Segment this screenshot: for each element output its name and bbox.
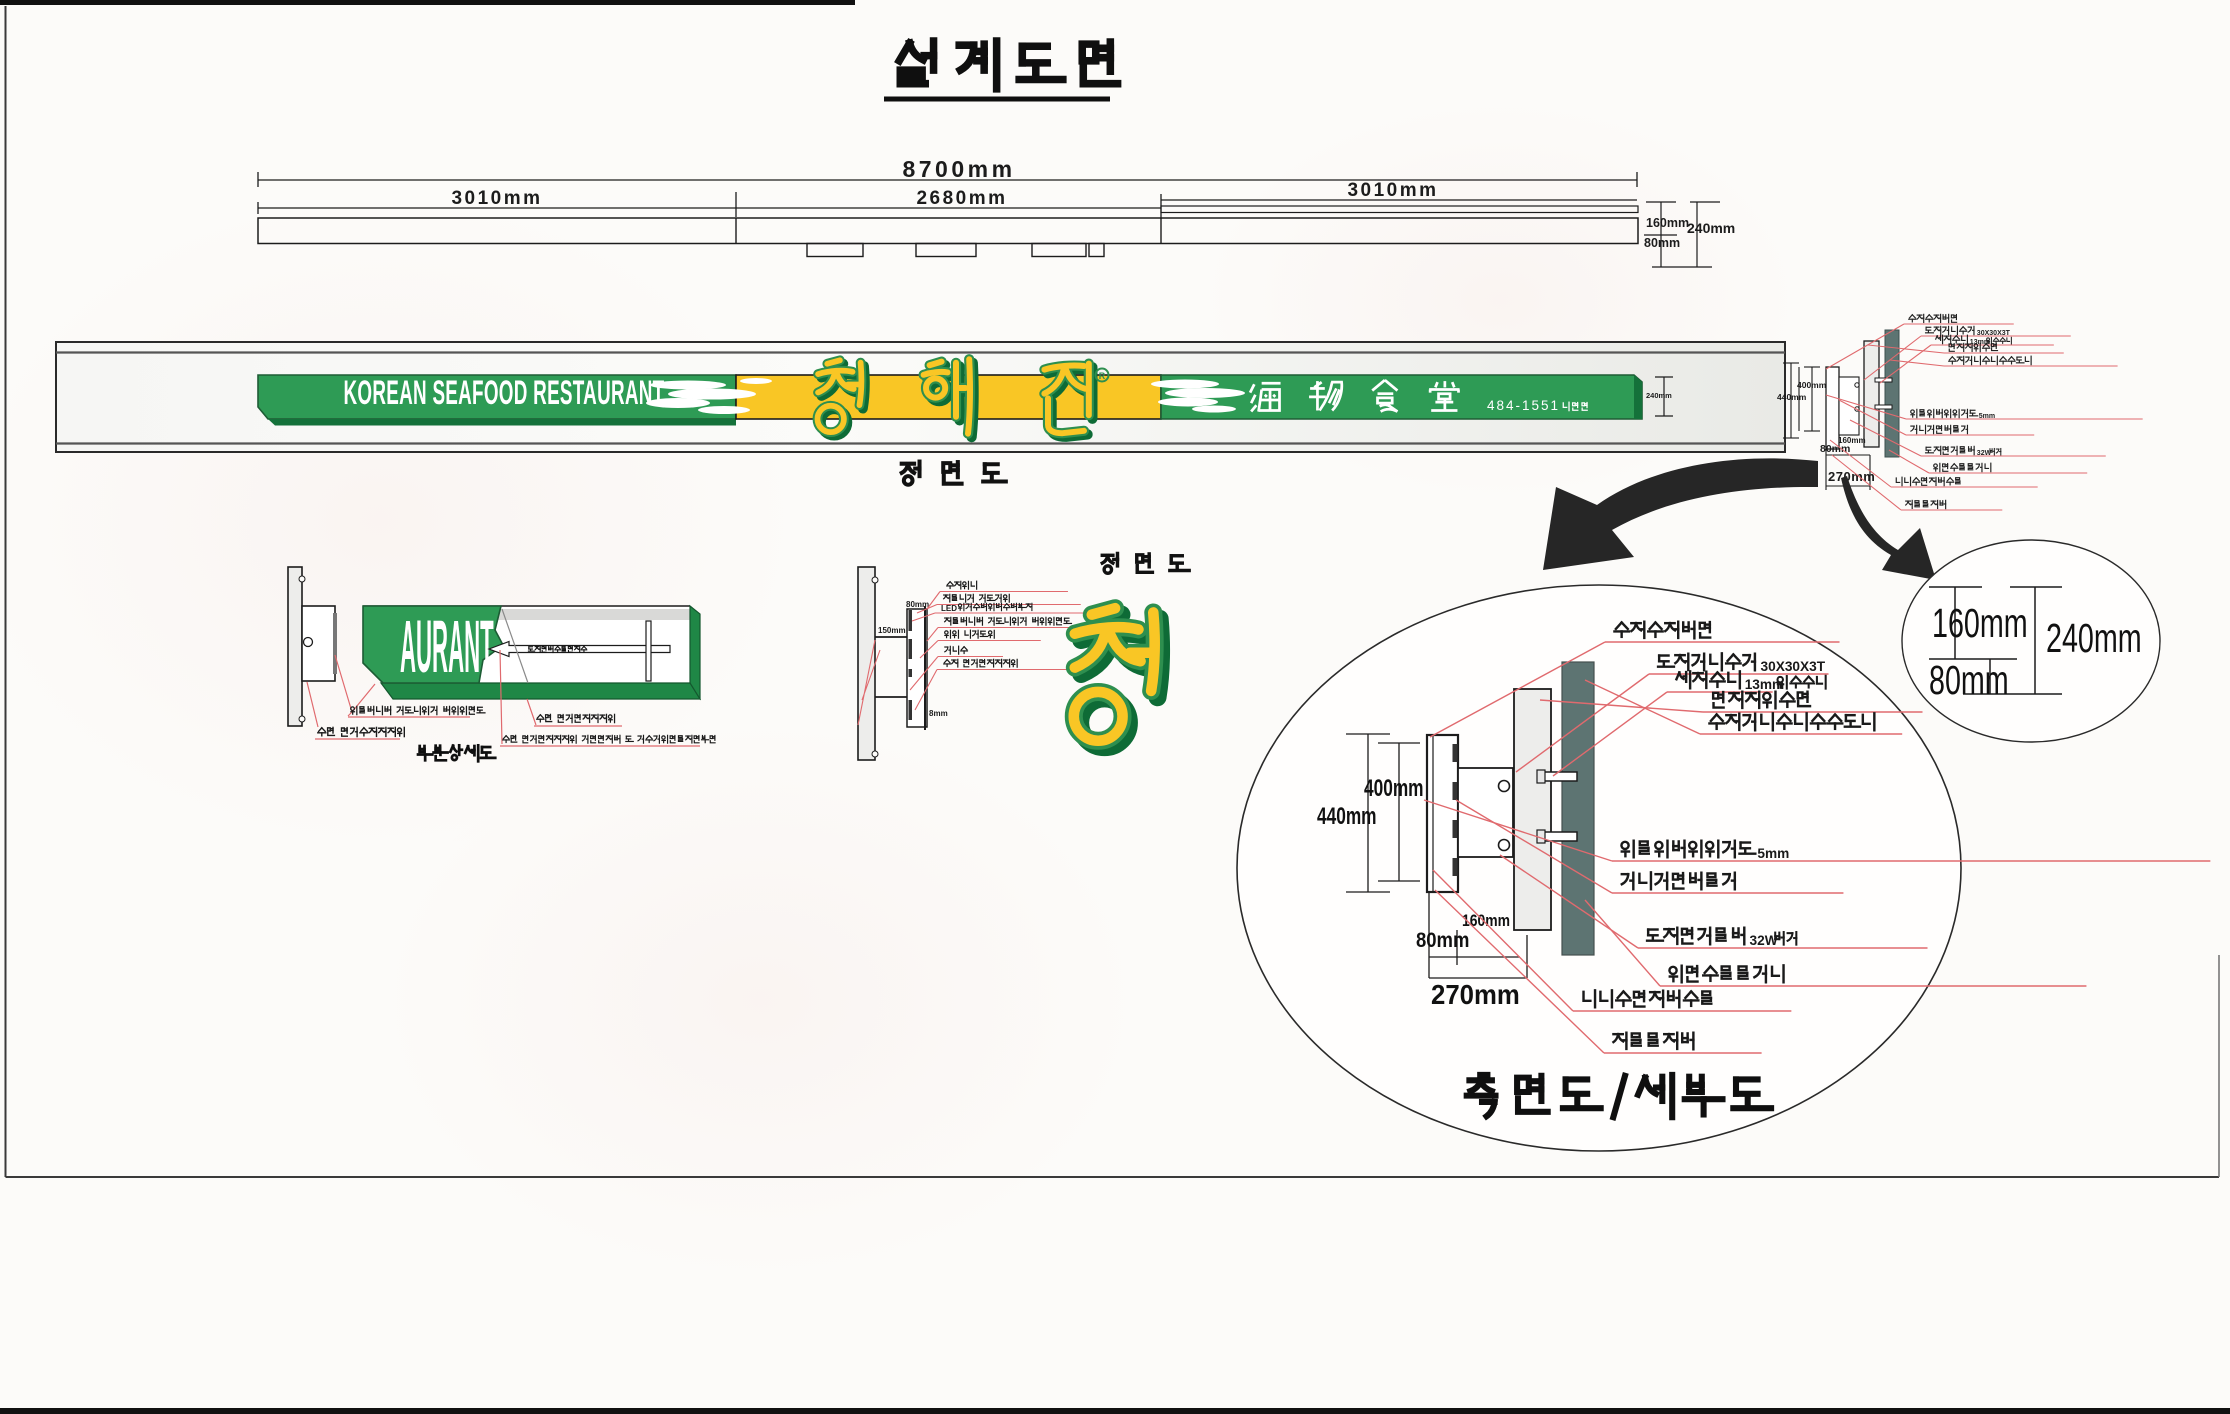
svg-text:5mm: 5mm bbox=[1979, 413, 1995, 420]
svg-text:240mm: 240mm bbox=[1687, 220, 1735, 236]
svg-text:400mm: 400mm bbox=[1797, 380, 1827, 390]
svg-text:240mm: 240mm bbox=[2046, 616, 2142, 661]
svg-text:3010mm: 3010mm bbox=[1347, 180, 1438, 201]
svg-text:484-1551: 484-1551 bbox=[1487, 398, 1560, 413]
svg-text:8mm: 8mm bbox=[929, 709, 948, 718]
svg-text:LED: LED bbox=[941, 604, 957, 613]
svg-text:80mm: 80mm bbox=[1929, 658, 2009, 703]
svg-text:8700mm: 8700mm bbox=[902, 156, 1015, 182]
svg-text:32W: 32W bbox=[1750, 933, 1778, 948]
svg-text:440mm: 440mm bbox=[1777, 392, 1807, 402]
svg-text:160mm: 160mm bbox=[1932, 601, 2028, 646]
svg-text:30X30X3T: 30X30X3T bbox=[1977, 330, 2011, 337]
svg-text:2680mm: 2680mm bbox=[916, 188, 1007, 209]
svg-text:KOREAN SEAFOOD RESTAURANT: KOREAN SEAFOOD RESTAURANT bbox=[344, 373, 665, 411]
svg-text:240mm: 240mm bbox=[1646, 391, 1672, 400]
svg-text:3010mm: 3010mm bbox=[451, 188, 542, 209]
svg-text:160mm: 160mm bbox=[1462, 912, 1510, 931]
svg-text:400mm: 400mm bbox=[1364, 775, 1424, 801]
svg-text:80mm: 80mm bbox=[906, 600, 929, 609]
svg-text:80mm: 80mm bbox=[1644, 236, 1680, 250]
svg-text:5mm: 5mm bbox=[1757, 846, 1789, 861]
svg-text:AURANT: AURANT bbox=[400, 606, 494, 689]
svg-text:150mm: 150mm bbox=[878, 626, 906, 635]
svg-text:32W: 32W bbox=[1977, 450, 1992, 457]
svg-text:160mm: 160mm bbox=[1646, 216, 1689, 230]
svg-text:R: R bbox=[1099, 371, 1106, 381]
svg-text:440mm: 440mm bbox=[1317, 803, 1377, 829]
svg-text:80mm: 80mm bbox=[1820, 443, 1850, 455]
svg-text:30X30X3T: 30X30X3T bbox=[1761, 659, 1826, 674]
svg-text:270mm: 270mm bbox=[1431, 979, 1520, 1010]
svg-text:80mm: 80mm bbox=[1416, 929, 1469, 952]
